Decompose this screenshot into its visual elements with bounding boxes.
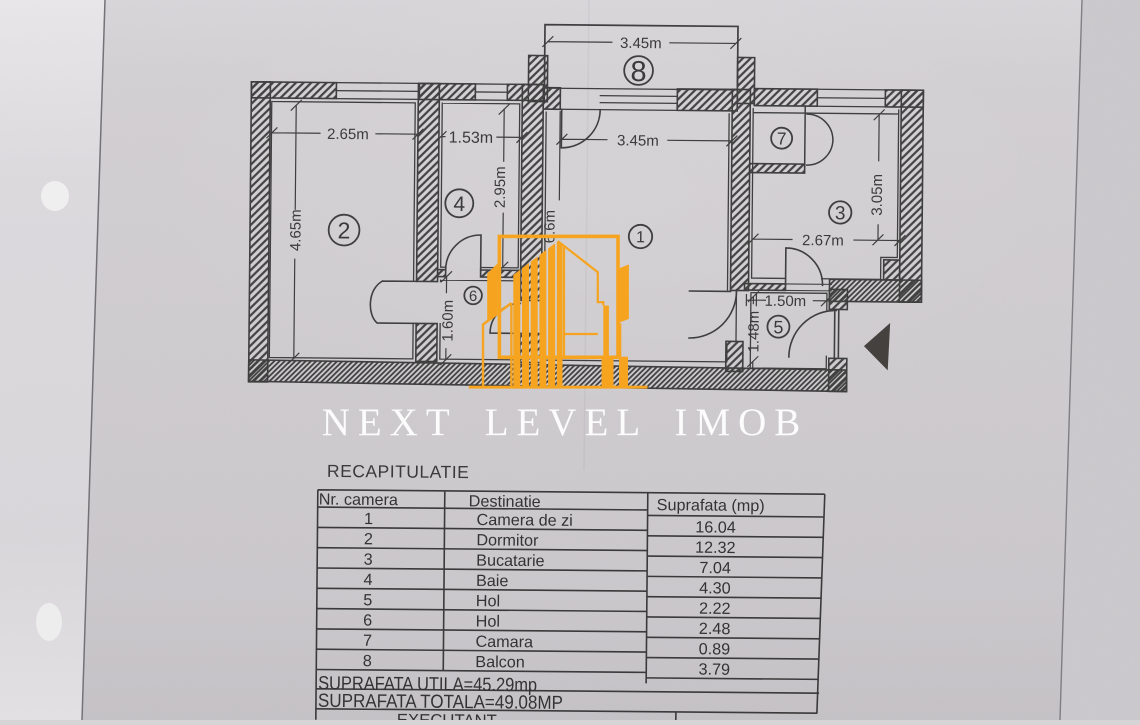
svg-text:5: 5: [363, 591, 372, 609]
svg-text:Bucatarie: Bucatarie: [476, 552, 545, 571]
svg-text:1.60m: 1.60m: [439, 300, 456, 342]
svg-text:2.67m: 2.67m: [802, 232, 844, 249]
svg-text:2: 2: [338, 217, 351, 243]
svg-text:3.05m: 3.05m: [869, 174, 886, 216]
svg-text:3.45m: 3.45m: [620, 35, 662, 52]
svg-text:Baie: Baie: [476, 572, 509, 590]
svg-text:2.65m: 2.65m: [327, 126, 369, 143]
svg-text:8: 8: [363, 652, 372, 670]
svg-text:EXECUTANT: EXECUTANT: [397, 710, 497, 720]
svg-text:8: 8: [630, 56, 646, 88]
svg-text:6.6m: 6.6m: [541, 210, 558, 244]
svg-text:3.45m: 3.45m: [617, 132, 659, 149]
svg-text:1.48m: 1.48m: [745, 311, 762, 353]
svg-text:Suprafata (mp): Suprafata (mp): [657, 496, 765, 515]
svg-text:6: 6: [469, 288, 478, 305]
svg-text:Dormitor: Dormitor: [476, 531, 539, 550]
svg-text:4.65m: 4.65m: [287, 209, 304, 251]
svg-text:1.50m: 1.50m: [764, 293, 806, 310]
svg-text:NEXT LEVEL IMOB: NEXT LEVEL IMOB: [322, 401, 809, 444]
svg-text:3.79: 3.79: [698, 661, 730, 679]
svg-text:4.30: 4.30: [699, 579, 731, 597]
svg-text:Hol: Hol: [476, 592, 500, 610]
svg-text:1.53m: 1.53m: [449, 129, 494, 146]
svg-text:2: 2: [364, 530, 373, 548]
svg-text:Balcon: Balcon: [475, 653, 525, 671]
svg-text:7: 7: [363, 632, 372, 650]
svg-text:RECAPITULATIE: RECAPITULATIE: [327, 461, 469, 482]
svg-text:6: 6: [363, 611, 372, 629]
svg-text:3: 3: [835, 203, 846, 224]
svg-text:2.48: 2.48: [699, 620, 731, 638]
svg-text:2.95m: 2.95m: [492, 166, 509, 208]
svg-text:4: 4: [363, 571, 372, 589]
svg-text:7: 7: [777, 129, 787, 149]
svg-text:16.04: 16.04: [695, 518, 736, 536]
svg-text:Camera de zi: Camera de zi: [476, 511, 572, 530]
svg-text:7.04: 7.04: [699, 559, 731, 577]
svg-text:1: 1: [364, 510, 373, 528]
svg-text:Nr. camera: Nr. camera: [319, 491, 398, 510]
svg-text:4: 4: [453, 193, 465, 216]
svg-text:12.32: 12.32: [695, 539, 736, 557]
svg-text:0.89: 0.89: [699, 640, 731, 658]
svg-text:Destinatie: Destinatie: [469, 492, 541, 511]
svg-text:1: 1: [636, 229, 645, 246]
svg-text:3: 3: [364, 551, 373, 569]
svg-text:Camara: Camara: [475, 633, 533, 652]
svg-text:Hol: Hol: [476, 612, 500, 630]
svg-text:2.22: 2.22: [699, 600, 731, 618]
svg-text:5: 5: [773, 317, 783, 337]
